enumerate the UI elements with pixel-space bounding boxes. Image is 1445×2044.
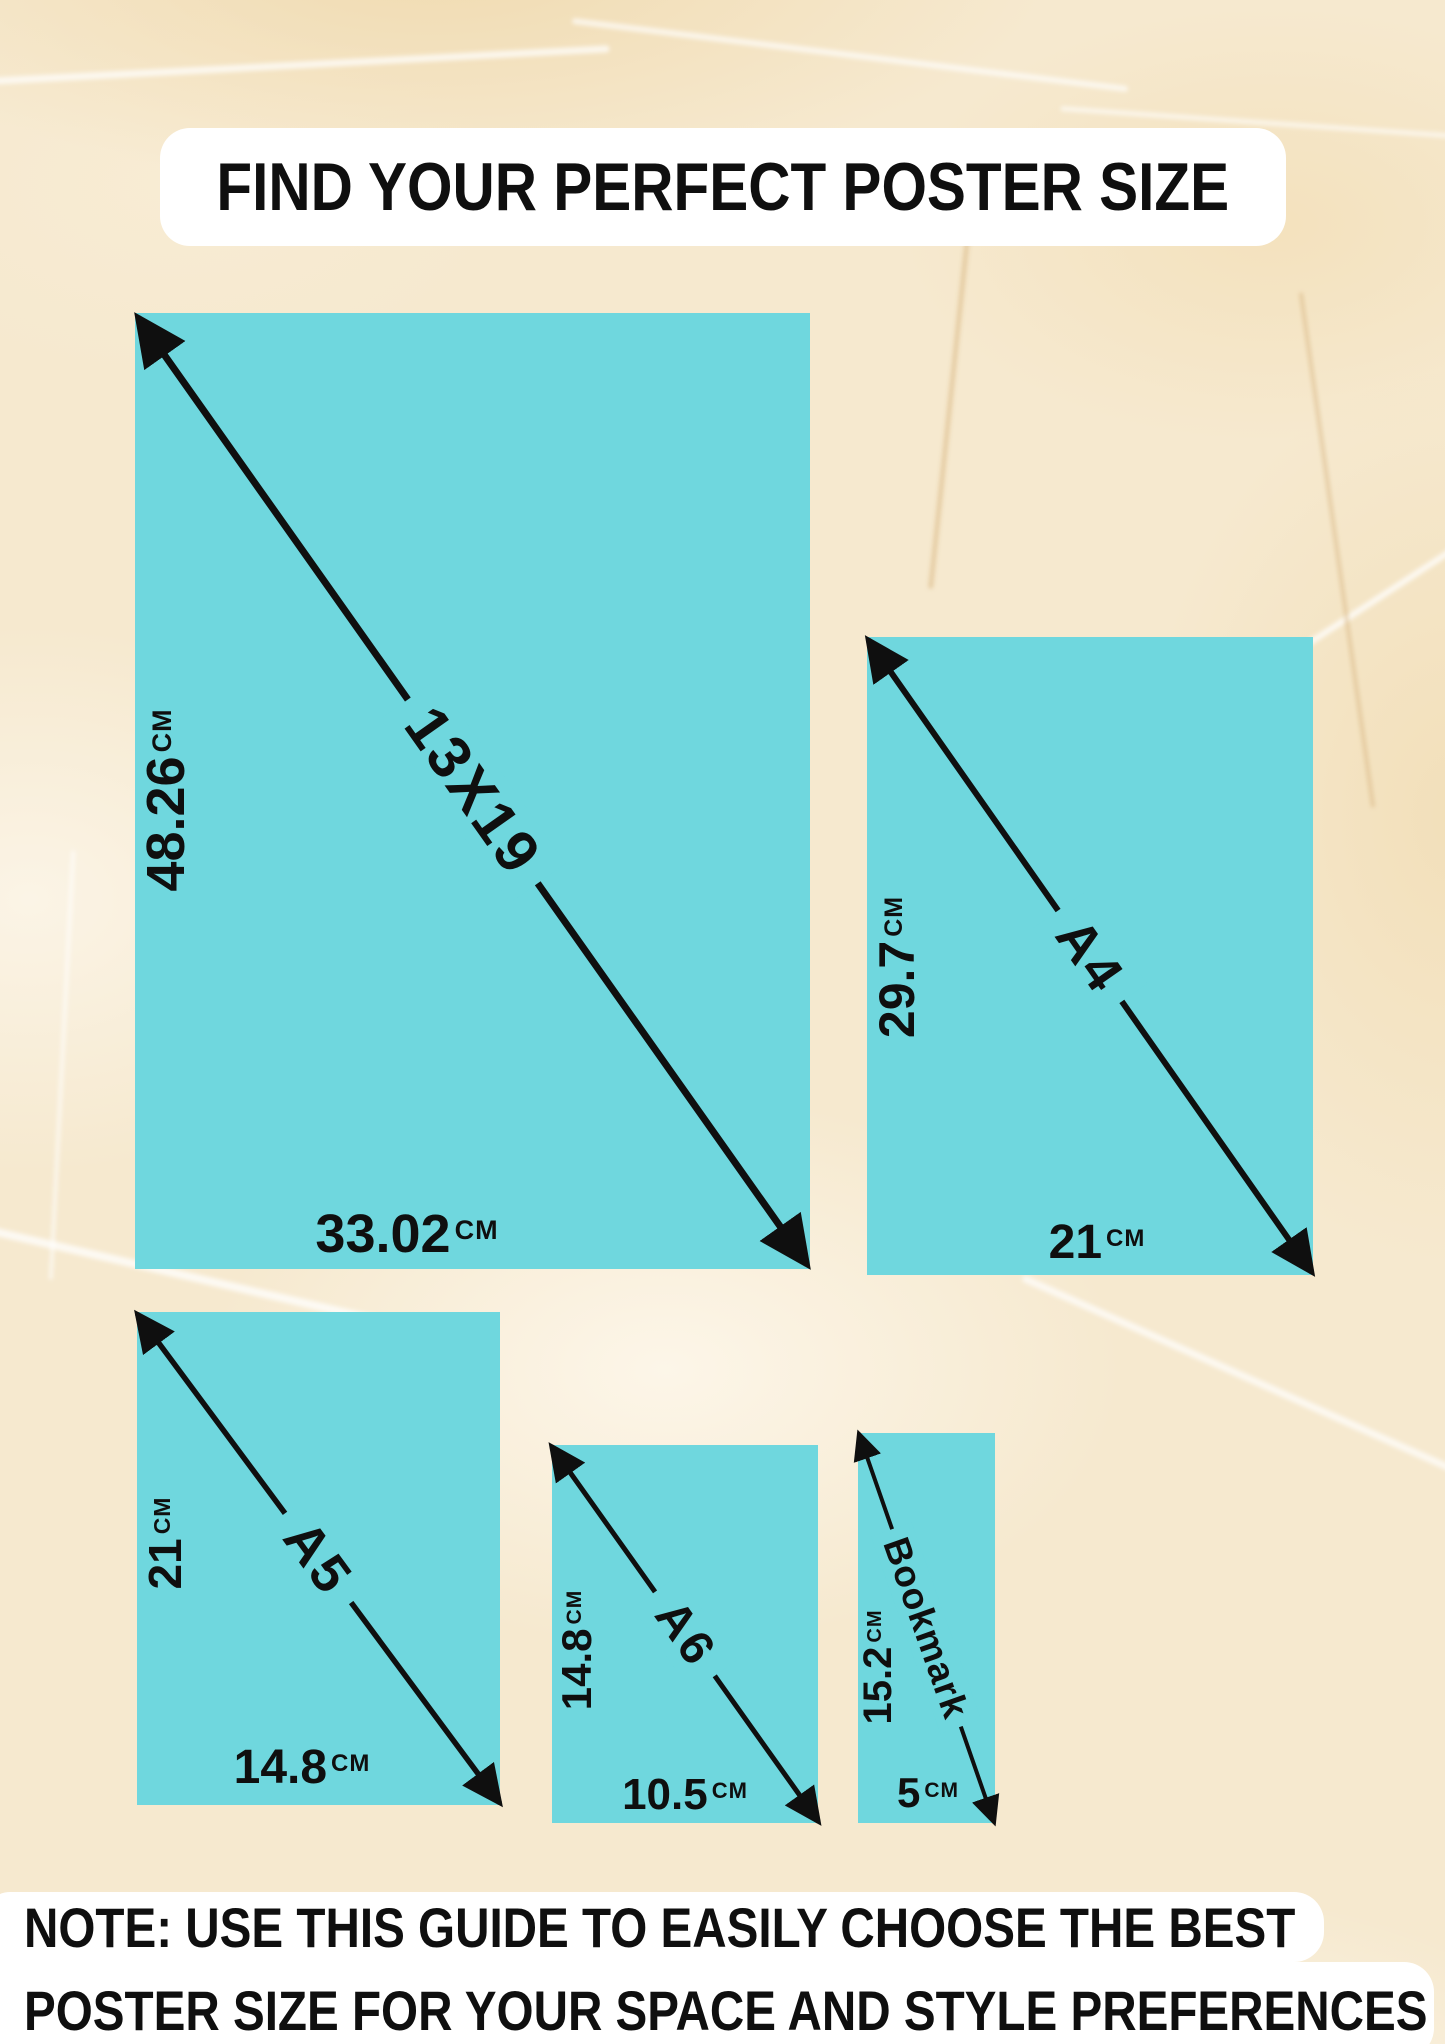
height-unit: CM [563,1590,586,1625]
width-value: 33.02 [315,1204,450,1264]
height-label: 21CM [142,1497,188,1590]
width-value: 5 [897,1769,920,1816]
title-panel: FIND YOUR PERFECT POSTER SIZE [160,128,1286,246]
note-text-line1: NOTE: USE THIS GUIDE TO EASILY CHOOSE TH… [24,1895,1295,1960]
poster-name-a6: A6 [632,1576,737,1693]
width-value: 21 [1049,1216,1102,1269]
page-title: FIND YOUR PERFECT POSTER SIZE [217,148,1230,226]
note-panel-line1: NOTE: USE THIS GUIDE TO EASILY CHOOSE TH… [0,1892,1324,1962]
poster-13x19: 48.26CM 13X19 33.02CM [135,313,810,1269]
height-label: 48.26CM [139,708,193,891]
poster-a6: 14.8CM A6 10.5CM [552,1445,818,1823]
height-label: 15.2CM [858,1610,898,1725]
marble-vein [0,45,610,85]
width-label: 10.5CM [622,1773,748,1817]
poster-name-13x19: 13X19 [381,680,566,903]
width-unit: CM [1106,1225,1145,1252]
note-panel-line2: POSTER SIZE FOR YOUR SPACE AND STYLE PRE… [0,1962,1434,2044]
width-unit: CM [331,1750,370,1777]
marble-vein [49,850,75,1280]
height-unit: CM [880,896,908,937]
height-value: 15.2 [856,1647,900,1725]
height-value: 48.26 [136,756,196,891]
height-value: 29.7 [869,941,925,1038]
marble-vein [1021,1275,1445,1493]
note-text-line2: POSTER SIZE FOR YOUR SPACE AND STYLE PRE… [24,1978,1428,2043]
width-label: 14.8CM [234,1744,371,1792]
poster-name-a5: A5 [260,1495,376,1621]
width-unit: CM [455,1215,499,1245]
width-value: 10.5 [622,1770,708,1819]
poster-bookmark: 15.2CM Bookmark 5CM [858,1433,995,1823]
poster-a5: 21CM A5 14.8CM [137,1312,500,1805]
marble-vein [572,18,1129,92]
width-value: 14.8 [234,1741,327,1794]
width-unit: CM [924,1779,959,1802]
height-unit: CM [147,708,177,752]
height-label: 14.8CM [556,1590,598,1710]
height-value: 14.8 [553,1628,600,1710]
width-label: 21CM [1049,1219,1146,1267]
width-label: 33.02CM [315,1207,498,1261]
height-value: 21 [139,1538,191,1589]
height-unit: CM [149,1497,175,1535]
poster-size-guide: FIND YOUR PERFECT POSTER SIZE 48.26CM 13… [0,0,1445,2044]
height-label: 29.7CM [872,896,922,1038]
width-label: 5CM [897,1772,959,1814]
height-unit: CM [864,1610,886,1643]
poster-name-a4: A4 [1033,893,1147,1020]
poster-a4: 29.7CM A4 21CM [867,637,1313,1275]
width-unit: CM [712,1778,748,1803]
